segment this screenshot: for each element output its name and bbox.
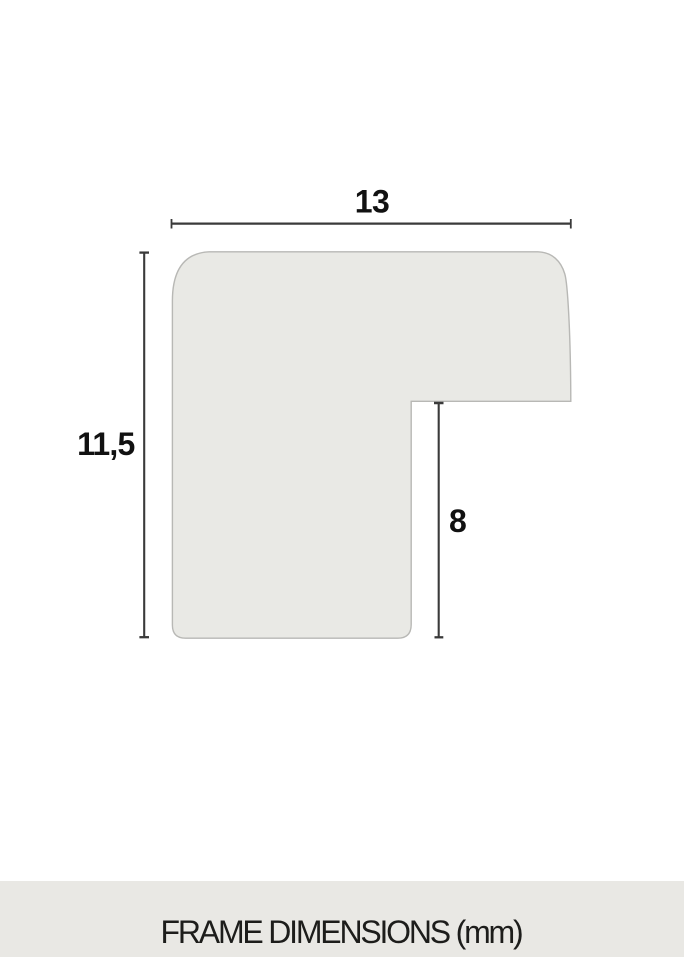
svg-text:FRAME DIMENSIONS (mm): FRAME DIMENSIONS (mm) [161,914,522,950]
svg-text:11,5: 11,5 [77,426,134,462]
svg-text:13: 13 [355,184,390,220]
svg-text:8: 8 [449,503,467,539]
